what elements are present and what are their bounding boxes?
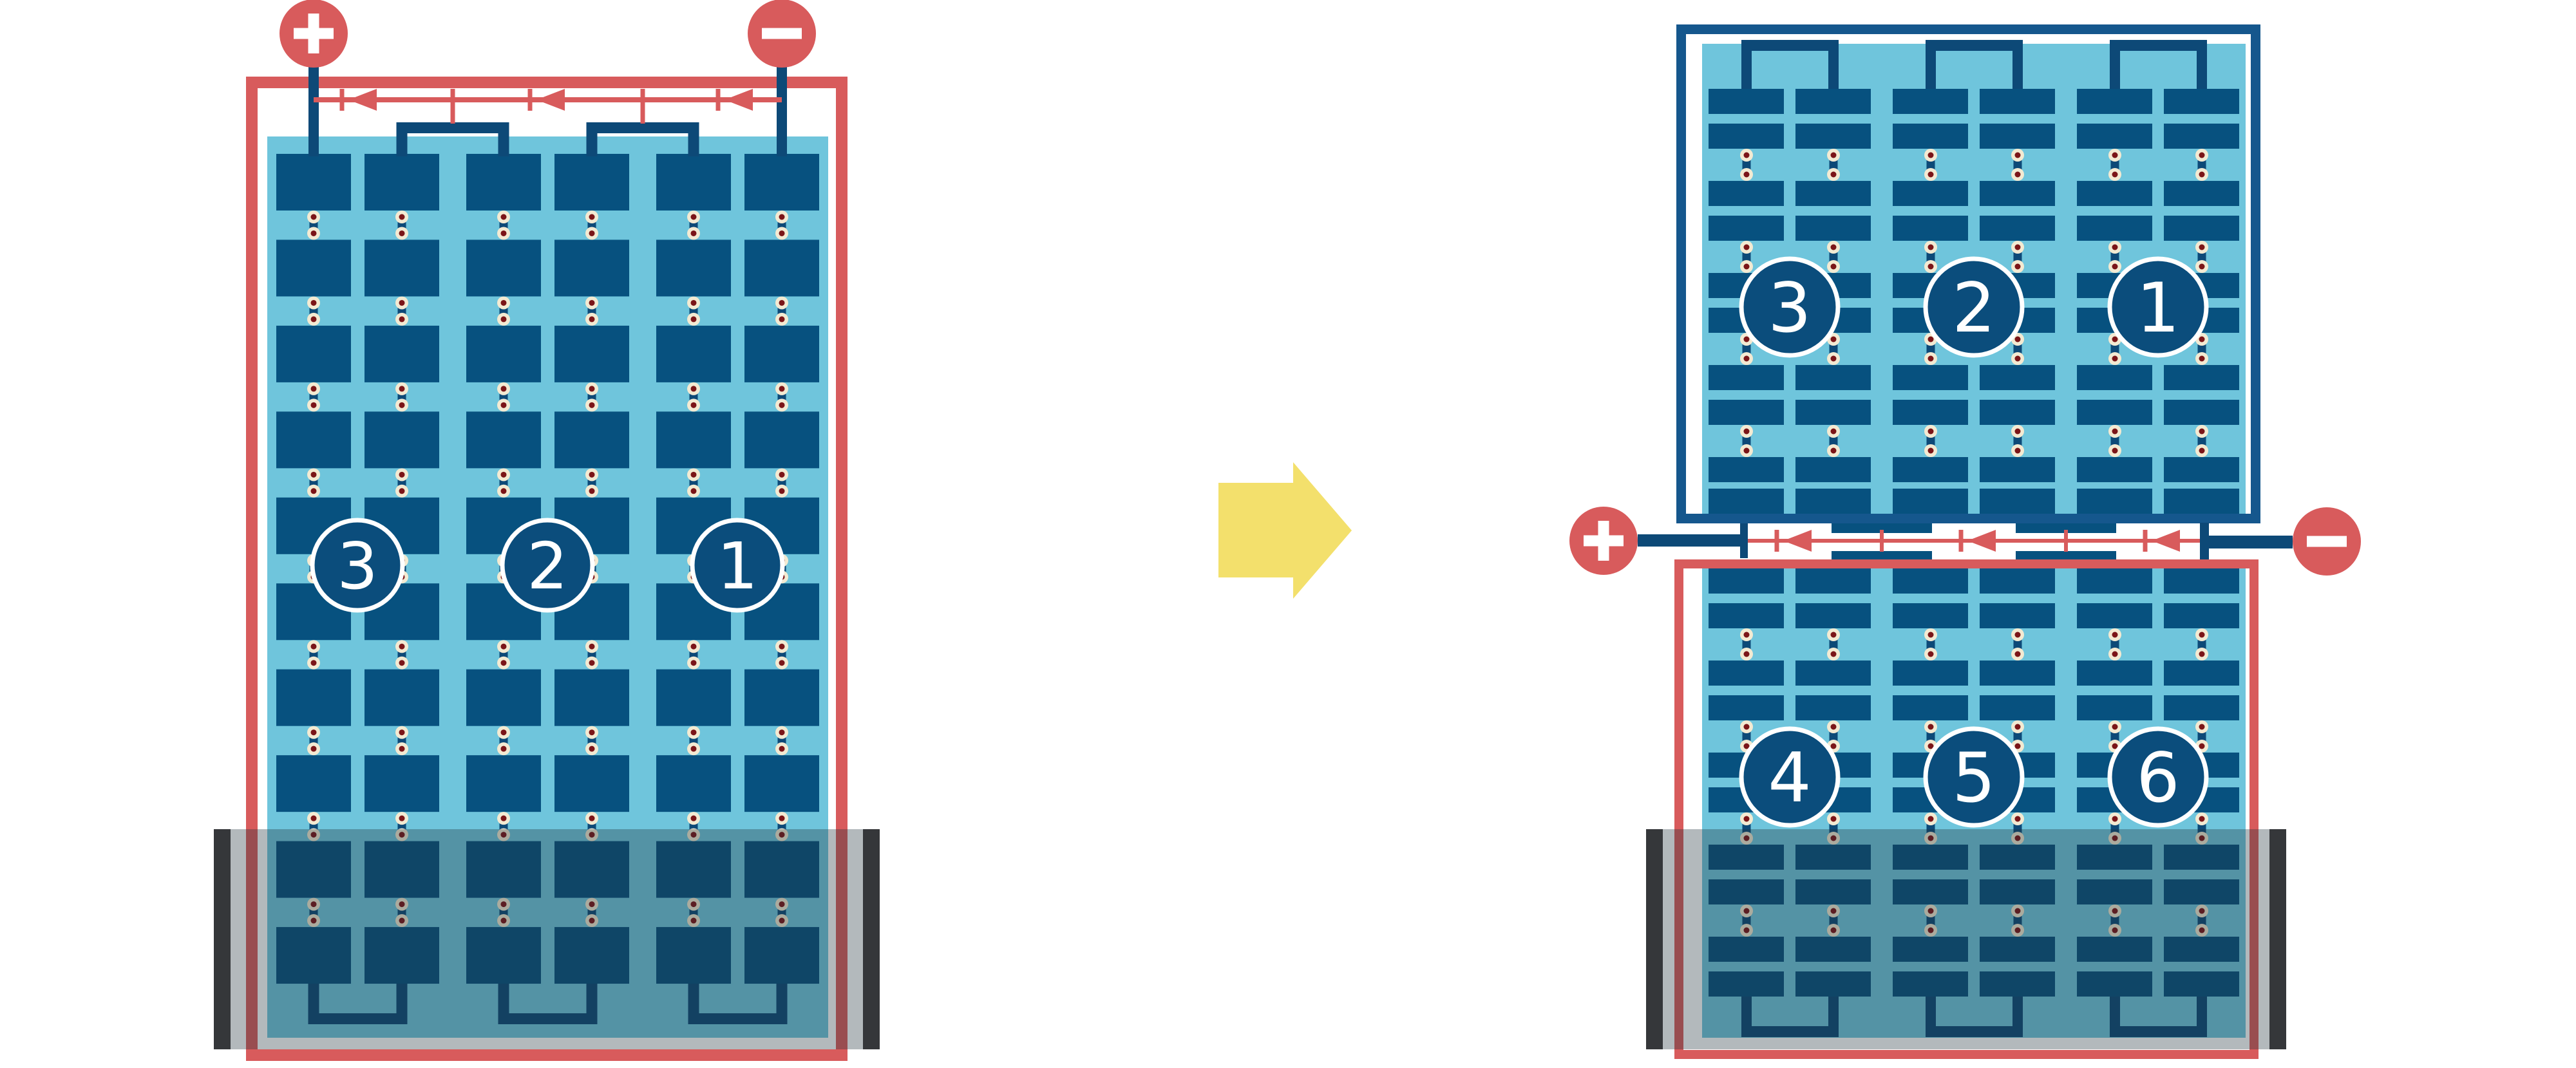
solar-cell xyxy=(365,411,439,468)
solar-cell xyxy=(2164,603,2239,628)
solder-pad-dot xyxy=(501,300,507,306)
solder-pad-dot xyxy=(311,300,317,306)
solder-pad-dot xyxy=(1744,632,1750,638)
solar-cell xyxy=(744,755,819,812)
diode-arrow-icon xyxy=(1783,530,1812,552)
solar-cell xyxy=(554,411,629,468)
solar-cell xyxy=(1709,89,1784,114)
solar-cell xyxy=(276,755,351,812)
solder-pad-dot xyxy=(691,214,697,220)
string-bridge-leg xyxy=(2012,40,2023,90)
solar-cell xyxy=(1795,568,1871,594)
solder-pad-dot xyxy=(779,300,785,306)
solar-cell xyxy=(2164,365,2239,390)
solar-cell xyxy=(1893,660,1968,686)
terminal-stem xyxy=(308,64,319,156)
solder-pad-dot xyxy=(691,660,697,666)
solar-cell xyxy=(1795,695,1871,720)
solder-pad-dot xyxy=(2015,337,2021,342)
solder-pad-dot xyxy=(691,300,697,306)
solder-pad-dot xyxy=(2015,816,2021,822)
solder-pad-dot xyxy=(399,488,405,494)
solder-pad-dot xyxy=(2015,245,2021,250)
solar-cell xyxy=(276,326,351,382)
solder-pad-dot xyxy=(1928,264,1934,270)
solder-pad-dot xyxy=(1744,356,1750,362)
solar-cell xyxy=(1795,124,1871,149)
solder-pad-dot xyxy=(311,660,317,666)
solder-pad-dot xyxy=(779,214,785,220)
solar-cell xyxy=(744,411,819,468)
flood-clamp-bar xyxy=(863,829,880,1049)
solar-cell xyxy=(656,154,731,211)
string-bridge xyxy=(1926,40,2023,51)
solar-cell xyxy=(365,154,439,211)
solar-cell xyxy=(1980,124,2055,149)
solder-pad-dot xyxy=(2112,632,2118,638)
solar-module-diagram: 3 2 1 3 2 1 4 5 6 xyxy=(0,0,2576,1068)
solder-pad-dot xyxy=(1928,337,1934,342)
solder-pad-dot xyxy=(399,300,405,306)
solder-pad-dot xyxy=(399,746,405,752)
solar-cell xyxy=(2164,89,2239,114)
solder-pad-dot xyxy=(501,316,507,322)
solar-cell xyxy=(466,411,541,468)
solder-pad-dot xyxy=(1928,448,1934,454)
solder-pad-dot xyxy=(311,230,317,236)
solder-pad-dot xyxy=(1744,337,1750,342)
solder-pad-dot xyxy=(691,386,697,391)
solder-pad-dot xyxy=(2112,651,2118,657)
solder-pad-dot xyxy=(1928,632,1934,638)
solder-pad-dot xyxy=(2199,632,2205,638)
solder-pad-dot xyxy=(2015,264,2021,270)
solder-pad-dot xyxy=(1928,724,1934,730)
solder-pad-dot xyxy=(1928,651,1934,657)
solder-pad-dot xyxy=(779,230,785,236)
flood-clamp-bar xyxy=(2269,829,2286,1049)
solder-pad-dot xyxy=(399,644,405,650)
solder-pad-dot xyxy=(311,488,317,494)
solar-cell xyxy=(1709,660,1784,686)
solar-cell xyxy=(2077,660,2152,686)
solder-pad-dot xyxy=(691,729,697,735)
solder-pad-dot xyxy=(589,214,595,220)
solar-cell xyxy=(1709,568,1784,594)
solar-cell xyxy=(554,239,629,296)
bottom-string-label-4: 4 xyxy=(1768,738,1811,818)
solder-pad-dot xyxy=(779,644,785,650)
minus-icon xyxy=(2307,536,2347,547)
solder-pad-dot xyxy=(2199,448,2205,454)
solder-pad-dot xyxy=(779,488,785,494)
solder-pad-dot xyxy=(2015,172,2021,178)
solar-cell xyxy=(554,326,629,382)
solar-cell xyxy=(1980,695,2055,720)
diode-arrow-icon xyxy=(2152,530,2180,552)
solder-pad-dot xyxy=(691,488,697,494)
solder-pad-dot xyxy=(589,816,595,821)
solar-cell xyxy=(276,154,351,211)
solar-cell xyxy=(1893,568,1968,594)
solder-pad-dot xyxy=(501,488,507,494)
solder-pad-dot xyxy=(589,644,595,650)
diode-arrow-icon xyxy=(1967,530,1996,552)
solder-pad-dot xyxy=(2199,816,2205,822)
solder-pad-dot xyxy=(2015,651,2021,657)
solder-pad-dot xyxy=(779,746,785,752)
solder-pad-dot xyxy=(691,644,697,650)
solder-pad-dot xyxy=(2112,448,2118,454)
solar-cell xyxy=(1893,457,1968,482)
top-string-label-3: 3 xyxy=(1768,268,1811,348)
solder-pad-dot xyxy=(1744,264,1750,270)
solar-cell xyxy=(1893,489,1968,514)
solar-cell xyxy=(1795,89,1871,114)
solar-cell xyxy=(1893,695,1968,720)
solder-pad-dot xyxy=(311,644,317,650)
solder-pad-dot xyxy=(399,660,405,666)
solar-cell xyxy=(2164,489,2239,514)
solder-pad-dot xyxy=(589,402,595,408)
solar-cell xyxy=(744,239,819,296)
solar-cell xyxy=(1709,181,1784,206)
solar-cell xyxy=(276,239,351,296)
solar-cell xyxy=(365,239,439,296)
solar-cell xyxy=(1893,124,1968,149)
solar-cell xyxy=(1980,568,2055,594)
solar-cell xyxy=(1980,365,2055,390)
string-bridge-leg xyxy=(1926,40,1936,90)
solder-pad-dot xyxy=(399,472,405,478)
solar-cell xyxy=(554,154,629,211)
solder-pad-dot xyxy=(1831,429,1837,435)
solder-pad-dot xyxy=(2199,651,2205,657)
solar-cell xyxy=(656,239,731,296)
diode-arrow-icon xyxy=(536,89,565,111)
solar-cell xyxy=(1980,457,2055,482)
solar-cell xyxy=(1795,660,1871,686)
diode-cathode-bar xyxy=(1775,530,1779,552)
bus-end-stub xyxy=(1740,523,1748,558)
solar-cell xyxy=(2077,89,2152,114)
solder-pad-dot xyxy=(399,402,405,408)
solder-pad-dot xyxy=(2015,153,2021,158)
flood-water-overlay xyxy=(214,829,880,1049)
solder-pad-dot xyxy=(1831,632,1837,638)
solder-pad-dot xyxy=(1928,153,1934,158)
solar-cell xyxy=(1795,603,1871,628)
solder-pad-dot xyxy=(1744,172,1750,178)
solder-pad-dot xyxy=(1744,724,1750,730)
solder-pad-dot xyxy=(311,214,317,220)
transform-arrow xyxy=(1218,462,1352,599)
solder-pad-dot xyxy=(2015,356,2021,362)
solar-cell xyxy=(1893,400,1968,425)
solder-pad-dot xyxy=(589,729,595,735)
solder-pad-dot xyxy=(1831,744,1837,749)
solar-cell xyxy=(466,154,541,211)
solder-pad-dot xyxy=(589,488,595,494)
solar-cell xyxy=(2164,568,2239,594)
solar-cell xyxy=(276,411,351,468)
solder-pad-dot xyxy=(501,816,507,821)
solder-pad-dot xyxy=(691,230,697,236)
string-bridge-leg xyxy=(2197,40,2207,90)
solder-pad-dot xyxy=(2199,172,2205,178)
solar-cell xyxy=(2077,457,2152,482)
solar-cell xyxy=(1980,400,2055,425)
solder-pad-dot xyxy=(399,316,405,322)
solar-cell xyxy=(365,755,439,812)
diode-arrow-icon xyxy=(348,89,377,111)
left-string-label-1: 1 xyxy=(717,529,758,604)
solar-cell xyxy=(466,755,541,812)
diode-cathode-bar xyxy=(1959,530,1964,552)
solar-cell xyxy=(2077,695,2152,720)
solar-cell xyxy=(1893,181,1968,206)
minus-lead-bar xyxy=(2208,536,2293,548)
solar-cell xyxy=(744,154,819,211)
solder-pad-dot xyxy=(2015,632,2021,638)
solar-cell xyxy=(1795,181,1871,206)
solder-pad-dot xyxy=(691,816,697,821)
solar-cell xyxy=(1709,695,1784,720)
string-bridge-leg xyxy=(2110,40,2120,90)
solar-cell xyxy=(1980,89,2055,114)
solder-pad-dot xyxy=(1744,651,1750,657)
solder-pad-dot xyxy=(779,729,785,735)
solder-pad-dot xyxy=(589,316,595,322)
solar-cell xyxy=(554,755,629,812)
solder-pad-dot xyxy=(2199,724,2205,730)
solar-cell xyxy=(2077,181,2152,206)
solder-pad-dot xyxy=(2015,744,2021,749)
bottom-string-label-6: 6 xyxy=(2136,738,2179,818)
solar-cell xyxy=(656,755,731,812)
solder-pad-dot xyxy=(311,402,317,408)
solder-pad-dot xyxy=(501,746,507,752)
solar-cell xyxy=(1795,457,1871,482)
solar-cell xyxy=(1709,216,1784,241)
diode-cathode-bar xyxy=(528,89,533,111)
solder-pad-dot xyxy=(2112,245,2118,250)
solder-pad-dot xyxy=(311,729,317,735)
solar-cell xyxy=(365,670,439,726)
diode-bus-tick xyxy=(1880,530,1884,552)
solder-pad-dot xyxy=(691,402,697,408)
string-bridge xyxy=(587,122,699,133)
solder-pad-dot xyxy=(589,746,595,752)
flood-water-overlay xyxy=(1646,829,2286,1049)
solder-pad-dot xyxy=(779,660,785,666)
solar-cell xyxy=(2077,603,2152,628)
flood-water-overlays xyxy=(214,829,2286,1049)
solder-pad-dot xyxy=(1928,172,1934,178)
solder-pad-dot xyxy=(2112,337,2118,342)
solder-pad-dot xyxy=(501,644,507,650)
solar-cell xyxy=(1893,365,1968,390)
solar-cell xyxy=(554,670,629,726)
solder-pad-dot xyxy=(2199,245,2205,250)
solar-cell xyxy=(1709,400,1784,425)
solder-pad-dot xyxy=(691,316,697,322)
solar-cell xyxy=(2164,660,2239,686)
bottom-string-label-5: 5 xyxy=(1952,738,1995,818)
solar-cell xyxy=(365,326,439,382)
solar-cell xyxy=(2164,400,2239,425)
solder-pad-dot xyxy=(501,472,507,478)
solder-pad-dot xyxy=(2112,172,2118,178)
solar-cell xyxy=(1980,603,2055,628)
diode-arrow-icon xyxy=(724,89,753,111)
solder-pad-dot xyxy=(1928,816,1934,822)
diagram-canvas: 3 2 1 3 2 1 4 5 6 xyxy=(0,0,2576,1068)
diode-bus-tick xyxy=(2064,530,2068,552)
solder-pad-dot xyxy=(501,660,507,666)
solder-pad-dot xyxy=(2112,724,2118,730)
solar-cell xyxy=(1795,489,1871,514)
solder-pad-dot xyxy=(1928,245,1934,250)
solder-pad-dot xyxy=(2112,153,2118,158)
solder-pad-dot xyxy=(1744,245,1750,250)
solar-cell xyxy=(1893,603,1968,628)
plus-icon xyxy=(1598,521,1609,561)
solder-pad-dot xyxy=(779,316,785,322)
solder-pad-dot xyxy=(399,729,405,735)
solder-pad-dot xyxy=(1744,153,1750,158)
solder-pad-dot xyxy=(1744,816,1750,822)
solar-cell xyxy=(2164,457,2239,482)
solder-pad-dot xyxy=(1831,651,1837,657)
solar-cell xyxy=(276,670,351,726)
solar-cell xyxy=(2164,695,2239,720)
solder-pad-dot xyxy=(2199,429,2205,435)
solar-cell xyxy=(1795,365,1871,390)
solder-pad-dot xyxy=(589,660,595,666)
flood-clamp-bar xyxy=(214,829,231,1049)
solder-pad-dot xyxy=(779,386,785,391)
solar-cell xyxy=(744,670,819,726)
solder-pad-dot xyxy=(1831,448,1837,454)
solder-pad-dot xyxy=(2199,356,2205,362)
solder-pad-dot xyxy=(1831,356,1837,362)
solder-pad-dot xyxy=(1928,356,1934,362)
solder-pad-dot xyxy=(2015,724,2021,730)
solar-cell xyxy=(1795,400,1871,425)
solder-pad-dot xyxy=(1831,245,1837,250)
bottom-module-tab xyxy=(1832,551,1932,560)
solder-pad-dot xyxy=(311,472,317,478)
solder-pad-dot xyxy=(501,402,507,408)
solder-pad-dot xyxy=(589,300,595,306)
solder-pad-dot xyxy=(399,816,405,821)
solar-cell xyxy=(1709,603,1784,628)
solder-pad-dot xyxy=(311,746,317,752)
solar-cell xyxy=(1795,216,1871,241)
flood-clamp-bar xyxy=(1646,829,1663,1049)
solder-pad-dot xyxy=(1744,448,1750,454)
minus-icon xyxy=(762,28,802,39)
string-bridge xyxy=(2110,40,2207,51)
solder-pad-dot xyxy=(2199,264,2205,270)
solder-pad-dot xyxy=(2015,448,2021,454)
solder-pad-dot xyxy=(691,746,697,752)
string-bridge-leg xyxy=(1828,40,1839,90)
solder-pad-dot xyxy=(1928,429,1934,435)
solar-cell xyxy=(466,326,541,382)
solar-cell xyxy=(2077,216,2152,241)
solar-cell xyxy=(1980,216,2055,241)
solder-pad-dot xyxy=(779,816,785,821)
string-bridge-leg xyxy=(587,122,598,156)
solder-pad-dot xyxy=(501,214,507,220)
solder-pad-dot xyxy=(2199,153,2205,158)
solar-cell xyxy=(2077,489,2152,514)
bus-end-stub xyxy=(2200,523,2209,562)
solar-cell xyxy=(1709,365,1784,390)
solar-cell xyxy=(2077,568,2152,594)
string-bridge xyxy=(1741,40,1839,51)
solar-cell xyxy=(1980,660,2055,686)
solder-pad-dot xyxy=(311,816,317,821)
bottom-module-tab xyxy=(2016,551,2116,560)
diode-bus-stub xyxy=(641,89,645,124)
plus-icon xyxy=(308,14,319,53)
string-bridge-leg xyxy=(397,122,408,156)
solder-pad-dot xyxy=(399,214,405,220)
right-arrow-icon xyxy=(1218,462,1352,599)
solder-pad-dot xyxy=(2112,429,2118,435)
solder-pad-dot xyxy=(2112,264,2118,270)
solder-pad-dot xyxy=(1831,337,1837,342)
solar-cell xyxy=(2164,181,2239,206)
solder-pad-dot xyxy=(1831,172,1837,178)
solar-cell xyxy=(1709,124,1784,149)
solder-pad-dot xyxy=(779,472,785,478)
solder-pad-dot xyxy=(691,472,697,478)
solder-pad-dot xyxy=(311,386,317,391)
solar-cell xyxy=(2164,216,2239,241)
solder-pad-dot xyxy=(2112,356,2118,362)
string-bridge xyxy=(397,122,509,133)
solar-cell xyxy=(1709,489,1784,514)
solar-cell xyxy=(1980,489,2055,514)
string-bridge-leg xyxy=(498,122,509,156)
solar-cell xyxy=(466,670,541,726)
solder-pad-dot xyxy=(311,316,317,322)
solar-cell xyxy=(1893,216,1968,241)
solder-pad-dot xyxy=(2199,337,2205,342)
solar-cell xyxy=(656,326,731,382)
solar-cell xyxy=(466,239,541,296)
solder-pad-dot xyxy=(2199,744,2205,749)
solder-pad-dot xyxy=(589,472,595,478)
solder-pad-dot xyxy=(1831,724,1837,730)
solder-pad-dot xyxy=(501,729,507,735)
diode-cathode-bar xyxy=(2143,530,2148,552)
top-string-label-1: 1 xyxy=(2136,268,2179,348)
solar-cell xyxy=(656,670,731,726)
diode-bus-stub xyxy=(451,89,455,124)
solar-cell xyxy=(2164,124,2239,149)
solder-pad-dot xyxy=(589,386,595,391)
top-string-label-2: 2 xyxy=(1952,268,1995,348)
solder-pad-dot xyxy=(501,386,507,391)
terminal-stem xyxy=(777,64,787,156)
diode-cathode-bar xyxy=(716,89,721,111)
solder-pad-dot xyxy=(501,230,507,236)
